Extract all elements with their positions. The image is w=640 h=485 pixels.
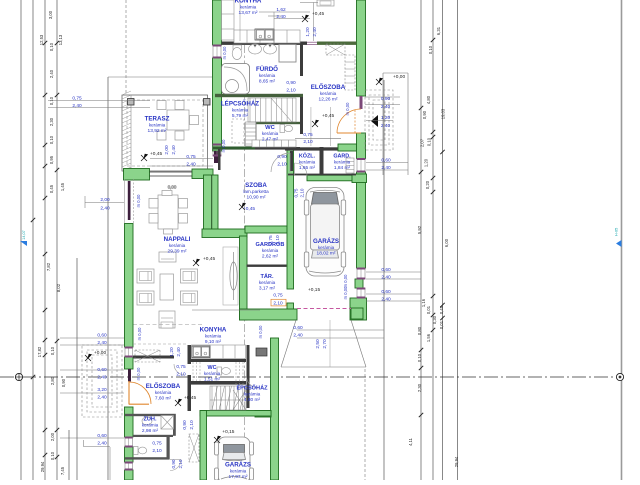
svg-text:0,45: 0,45 bbox=[49, 184, 54, 193]
svg-text:1,20: 1,20 bbox=[381, 115, 391, 121]
svg-text:+0,45: +0,45 bbox=[322, 113, 334, 119]
svg-text:kerámia: kerámia bbox=[142, 423, 159, 428]
svg-text:0,60: 0,60 bbox=[97, 333, 107, 339]
svg-text:13,13: 13,13 bbox=[58, 34, 63, 45]
svg-text:kerámia: kerámia bbox=[240, 5, 257, 10]
svg-text:2,40: 2,40 bbox=[97, 375, 107, 381]
svg-text:kerámia: kerámia bbox=[262, 131, 279, 136]
svg-text:18,02 m²: 18,02 m² bbox=[317, 251, 336, 257]
svg-text:2,62 m²: 2,62 m² bbox=[262, 254, 279, 260]
svg-text:29,94: 29,94 bbox=[454, 456, 459, 467]
svg-text:1,56: 1,56 bbox=[426, 333, 431, 342]
svg-text:H-05: H-05 bbox=[615, 228, 619, 236]
svg-text:13,67 m²: 13,67 m² bbox=[239, 10, 258, 16]
svg-text:0,75: 0,75 bbox=[186, 154, 196, 160]
svg-text:2,40: 2,40 bbox=[381, 297, 391, 303]
svg-text:2,07: 2,07 bbox=[420, 138, 425, 147]
svg-text:0,60: 0,60 bbox=[381, 267, 391, 273]
svg-text:2,10: 2,10 bbox=[286, 88, 296, 94]
svg-text:2,40: 2,40 bbox=[381, 104, 391, 110]
svg-text:0,10: 0,10 bbox=[49, 135, 54, 144]
svg-text:0,60: 0,60 bbox=[293, 325, 303, 331]
svg-text:10,90 m²: 10,90 m² bbox=[247, 195, 266, 201]
svg-text:2,40: 2,40 bbox=[381, 275, 391, 281]
svg-text:1,20: 1,20 bbox=[169, 347, 175, 357]
svg-text:4,11: 4,11 bbox=[408, 437, 413, 446]
svg-text:14,07: 14,07 bbox=[22, 230, 26, 240]
svg-text:GARÁZS: GARÁZS bbox=[313, 238, 339, 245]
svg-text:kerámia: kerámia bbox=[230, 469, 247, 474]
svg-text:2,10: 2,10 bbox=[300, 188, 305, 197]
svg-text:3,20: 3,20 bbox=[97, 387, 107, 393]
svg-text:0,10: 0,10 bbox=[417, 353, 422, 362]
svg-text:0,75: 0,75 bbox=[294, 188, 299, 197]
svg-text:3,17 m²: 3,17 m² bbox=[259, 286, 276, 292]
svg-text:+0,45: +0,45 bbox=[203, 256, 215, 262]
svg-text:7,82: 7,82 bbox=[46, 262, 51, 271]
svg-text:5,79 m²: 5,79 m² bbox=[232, 113, 249, 119]
svg-text:6,00: 6,00 bbox=[444, 238, 449, 247]
svg-text:2,40: 2,40 bbox=[381, 123, 391, 129]
svg-text:TERASZ: TERASZ bbox=[145, 116, 170, 123]
svg-text:SZOBA: SZOBA bbox=[245, 182, 267, 189]
svg-text:7,60 m²: 7,60 m² bbox=[155, 396, 172, 402]
svg-text:+0,00: +0,00 bbox=[94, 350, 106, 356]
svg-text:kerámia: kerámia bbox=[334, 160, 351, 165]
svg-text:2,00: 2,00 bbox=[100, 197, 110, 203]
svg-text:TÁR.: TÁR. bbox=[260, 273, 273, 280]
svg-text:kerámia: kerámia bbox=[155, 390, 172, 395]
svg-text:kerámia: kerámia bbox=[299, 160, 316, 165]
svg-text:0,10: 0,10 bbox=[50, 346, 55, 355]
svg-text:8,65 m²: 8,65 m² bbox=[259, 79, 276, 85]
svg-text:13,92 m²: 13,92 m² bbox=[148, 128, 167, 134]
svg-text:+0,15: +0,15 bbox=[308, 287, 320, 293]
svg-text:LÉPCSŐHÁZ: LÉPCSŐHÁZ bbox=[221, 100, 259, 108]
svg-text:KONYHA: KONYHA bbox=[200, 327, 227, 334]
svg-text:kerámia: kerámia bbox=[149, 123, 166, 128]
svg-text:kerámia: kerámia bbox=[259, 73, 276, 78]
svg-text:2,10: 2,10 bbox=[176, 372, 186, 378]
svg-text:4,80: 4,80 bbox=[426, 95, 431, 104]
svg-text:m 0,00: m 0,00 bbox=[137, 327, 142, 340]
svg-text:0,90: 0,90 bbox=[422, 110, 427, 119]
svg-text:+0,00: +0,00 bbox=[393, 74, 405, 80]
svg-text:m 0,00: m 0,00 bbox=[222, 46, 227, 59]
svg-text:2,40: 2,40 bbox=[276, 14, 286, 20]
svg-text:kerámia: kerámia bbox=[318, 245, 335, 250]
svg-text:2,40: 2,40 bbox=[97, 395, 107, 401]
svg-text:0,60: 0,60 bbox=[381, 158, 391, 164]
svg-text:0,90: 0,90 bbox=[182, 420, 188, 430]
svg-text:3,00: 3,00 bbox=[48, 10, 53, 19]
svg-text:+0,45: +0,45 bbox=[150, 151, 162, 157]
svg-text:19,03: 19,03 bbox=[441, 108, 446, 119]
svg-text:NAPPALI: NAPPALI bbox=[164, 236, 191, 243]
svg-text:+0,15: +0,15 bbox=[222, 429, 234, 435]
svg-text:0,80: 0,80 bbox=[417, 326, 422, 335]
svg-text:1,45: 1,45 bbox=[60, 182, 65, 191]
svg-text:0,90: 0,90 bbox=[286, 80, 296, 86]
svg-text:ELŐSZOBA: ELŐSZOBA bbox=[311, 84, 346, 91]
svg-text:1,62: 1,62 bbox=[276, 7, 286, 13]
svg-text:8,02: 8,02 bbox=[56, 283, 61, 292]
svg-text:1,16: 1,16 bbox=[421, 298, 426, 307]
svg-text:1,65 m²: 1,65 m² bbox=[299, 165, 316, 171]
svg-text:2,00: 2,00 bbox=[164, 145, 170, 155]
svg-text:kerámia: kerámia bbox=[262, 248, 279, 253]
svg-text:0,90: 0,90 bbox=[61, 378, 66, 387]
svg-text:2,40: 2,40 bbox=[72, 103, 82, 109]
svg-text:kerámia: kerámia bbox=[232, 108, 249, 113]
svg-text:9,10 m²: 9,10 m² bbox=[205, 339, 222, 345]
svg-text:m 0,00: m 0,00 bbox=[343, 286, 348, 299]
svg-text:kerámia: kerámia bbox=[244, 392, 261, 397]
svg-text:29,94: 29,94 bbox=[40, 461, 45, 472]
svg-text:0,75: 0,75 bbox=[303, 132, 313, 138]
svg-text:0,30: 0,30 bbox=[432, 315, 437, 324]
svg-text:5,92: 5,92 bbox=[417, 225, 422, 234]
svg-text:2,40: 2,40 bbox=[171, 145, 177, 155]
svg-text:0,75: 0,75 bbox=[268, 235, 274, 245]
svg-text:2,10: 2,10 bbox=[189, 420, 195, 430]
svg-text:2,10: 2,10 bbox=[273, 301, 283, 307]
svg-text:0,01: 0,01 bbox=[426, 305, 431, 314]
svg-text:kerámia: kerámia bbox=[169, 243, 186, 248]
svg-text:2,40: 2,40 bbox=[312, 27, 318, 37]
svg-text:2,10: 2,10 bbox=[277, 162, 287, 168]
svg-text:6,31: 6,31 bbox=[436, 26, 441, 35]
svg-text:KÖZL.: KÖZL. bbox=[299, 153, 316, 160]
svg-text:m 0,00: m 0,00 bbox=[258, 325, 263, 338]
svg-text:2,10: 2,10 bbox=[303, 139, 313, 145]
svg-text:2,30: 2,30 bbox=[49, 117, 54, 126]
svg-text:0,90: 0,90 bbox=[171, 459, 176, 468]
svg-text:2,10: 2,10 bbox=[178, 459, 183, 468]
svg-text:kerámia: kerámia bbox=[205, 334, 222, 339]
svg-text:17,97 m²: 17,97 m² bbox=[229, 474, 248, 480]
svg-text:1,84 m²: 1,84 m² bbox=[334, 165, 351, 171]
svg-text:m 0,00: m 0,00 bbox=[136, 194, 141, 207]
svg-text:0,60: 0,60 bbox=[381, 289, 391, 295]
svg-text:12,53: 12,53 bbox=[39, 34, 44, 45]
svg-text:0,10: 0,10 bbox=[428, 45, 433, 54]
svg-text:2,10: 2,10 bbox=[275, 235, 281, 245]
svg-text:kerámia: kerámia bbox=[204, 371, 221, 376]
svg-text:+0,45: +0,45 bbox=[243, 206, 255, 212]
svg-text:kerámia: kerámia bbox=[259, 280, 276, 285]
svg-text:2,70: 2,70 bbox=[322, 339, 328, 349]
svg-text:0,60: 0,60 bbox=[97, 433, 107, 439]
svg-text:2,10: 2,10 bbox=[152, 448, 162, 454]
svg-text:2,40: 2,40 bbox=[97, 441, 107, 447]
svg-text:2,98 m²: 2,98 m² bbox=[142, 428, 159, 434]
svg-text:0,01: 0,01 bbox=[439, 320, 444, 329]
svg-text:7,45: 7,45 bbox=[60, 466, 65, 475]
svg-text:0,75: 0,75 bbox=[152, 441, 162, 447]
svg-text:+0,45: +0,45 bbox=[312, 11, 324, 17]
svg-text:0,90: 0,90 bbox=[277, 154, 287, 160]
svg-text:17,82: 17,82 bbox=[37, 346, 42, 357]
svg-text:m 0,00: m 0,00 bbox=[221, 139, 226, 152]
svg-text:2,40: 2,40 bbox=[381, 165, 391, 171]
svg-text:m 0,00: m 0,00 bbox=[343, 274, 348, 287]
svg-text:GARÁZS: GARÁZS bbox=[225, 462, 251, 469]
svg-text:2,80: 2,80 bbox=[50, 376, 55, 385]
svg-text:1,51 m²: 1,51 m² bbox=[204, 377, 221, 383]
svg-text:2,40: 2,40 bbox=[49, 69, 54, 78]
svg-text:2,47 m²: 2,47 m² bbox=[262, 137, 279, 143]
svg-text:ÉPCSŐHÁZ: ÉPCSŐHÁZ bbox=[236, 384, 268, 392]
svg-text:2,50: 2,50 bbox=[315, 339, 321, 349]
svg-text:ELŐSZOBA: ELŐSZOBA bbox=[146, 383, 181, 390]
svg-text:0,20: 0,20 bbox=[425, 180, 430, 189]
svg-text:2,40: 2,40 bbox=[176, 347, 182, 357]
svg-text:1,20: 1,20 bbox=[424, 158, 429, 167]
svg-text:0,10: 0,10 bbox=[49, 42, 54, 51]
svg-text:2,00: 2,00 bbox=[50, 432, 55, 441]
svg-text:2,40: 2,40 bbox=[186, 162, 196, 168]
svg-text:0,75: 0,75 bbox=[72, 96, 82, 102]
svg-text:2,40: 2,40 bbox=[97, 340, 107, 346]
svg-text:m 0,00: m 0,00 bbox=[136, 367, 141, 380]
svg-text:+0,45: +0,45 bbox=[184, 395, 196, 401]
svg-text:0,00: 0,00 bbox=[168, 185, 177, 190]
svg-text:0,10: 0,10 bbox=[50, 451, 55, 460]
svg-text:29,39 m²: 29,39 m² bbox=[168, 249, 187, 255]
svg-text:2,40: 2,40 bbox=[293, 333, 303, 339]
svg-text:0,75: 0,75 bbox=[273, 293, 283, 299]
svg-text:2,40: 2,40 bbox=[100, 206, 110, 212]
svg-text:4,80 m²: 4,80 m² bbox=[244, 397, 261, 403]
svg-text:0,60: 0,60 bbox=[97, 367, 107, 373]
svg-text:0,90: 0,90 bbox=[381, 96, 391, 102]
svg-text:0,95: 0,95 bbox=[49, 155, 54, 164]
svg-text:lam.parketta: lam.parketta bbox=[243, 189, 269, 194]
svg-text:kerámia: kerámia bbox=[320, 91, 337, 96]
svg-text:1,20: 1,20 bbox=[305, 27, 311, 37]
svg-text:12,26 m²: 12,26 m² bbox=[319, 97, 338, 103]
svg-text:m 0,00: m 0,00 bbox=[345, 102, 350, 115]
svg-text:2,30: 2,30 bbox=[417, 383, 422, 392]
svg-text:FÜRDŐ: FÜRDŐ bbox=[256, 66, 278, 73]
svg-text:0,75: 0,75 bbox=[176, 364, 186, 370]
